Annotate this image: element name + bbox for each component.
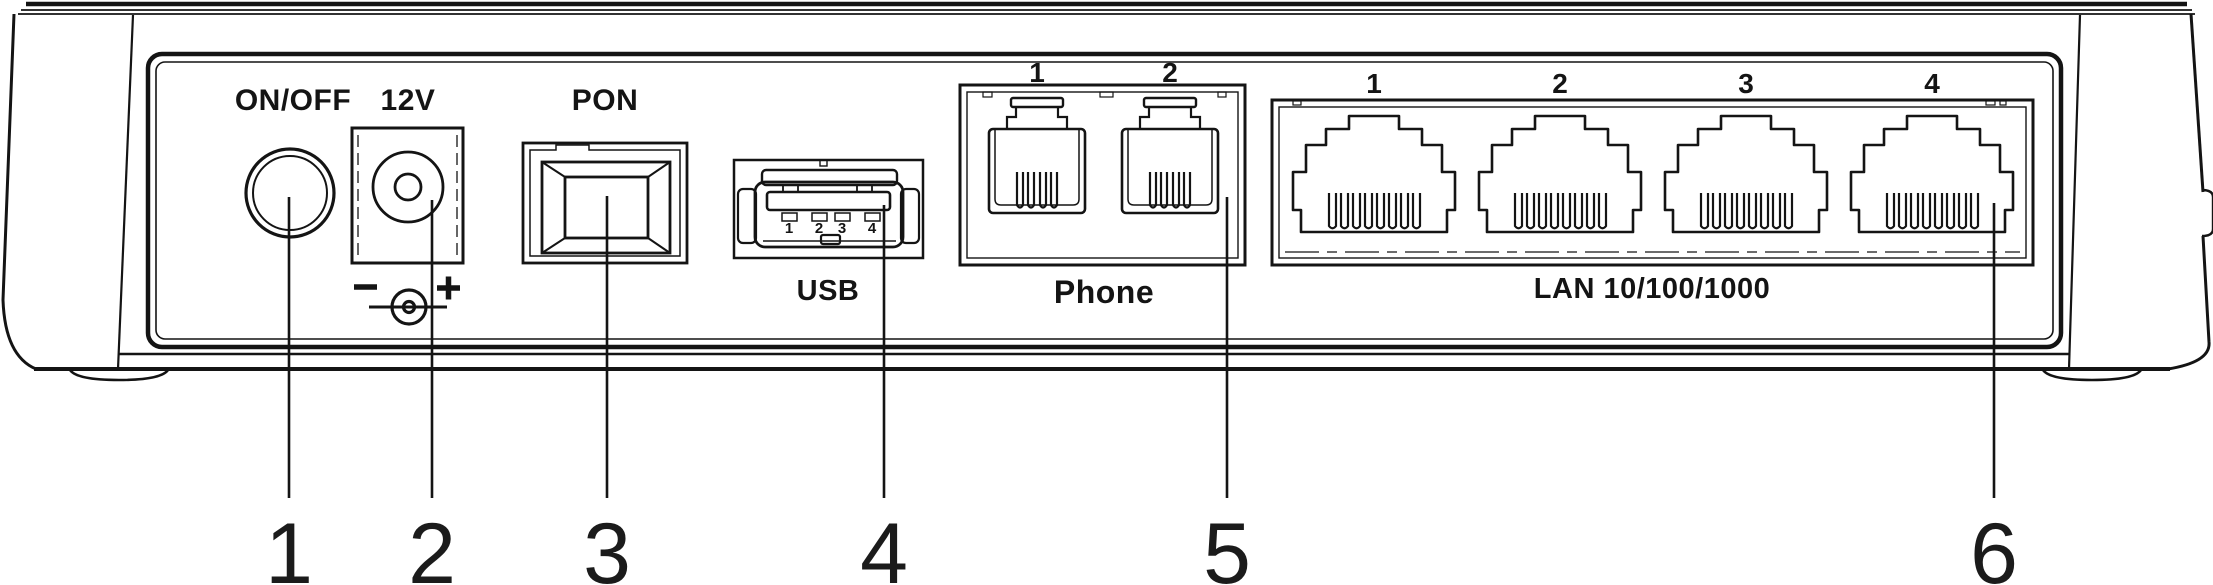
lan-port-3-number: 3 — [1738, 68, 1754, 99]
right-foot — [2043, 370, 2141, 380]
lan-port-4-number: 4 — [1924, 68, 1940, 99]
dc-jack-label: 12V — [381, 84, 436, 117]
rj45-jack-1 — [1293, 116, 1455, 232]
callout-numbers: 1 2 3 4 5 6 — [265, 506, 2018, 585]
phone-ports: 1 2 Phone — [960, 57, 1245, 310]
side-tab — [2202, 190, 2213, 236]
usb-port: 1 2 3 4 USB — [734, 160, 923, 307]
usb-pin-1: 1 — [785, 220, 793, 237]
left-foot — [70, 370, 168, 380]
lan-port-2-number: 2 — [1552, 68, 1568, 99]
usb-label: USB — [797, 275, 860, 307]
polarity-plus-icon — [437, 277, 460, 300]
callout-number-4: 4 — [860, 506, 908, 585]
rj11-jack-1 — [989, 98, 1085, 213]
rj45-jack-3 — [1665, 116, 1827, 232]
pon-port: PON — [523, 84, 687, 263]
dc-power-jack: 12V — [352, 84, 463, 324]
lan-block — [1272, 100, 2033, 265]
pon-label: PON — [572, 84, 639, 117]
lan-ports: 1 2 3 4 LAN 10/100/1000 — [1272, 68, 2033, 305]
phone-label: Phone — [1054, 274, 1154, 310]
phone-block — [960, 85, 1245, 265]
callout-number-1: 1 — [265, 506, 313, 585]
rear-panel-diagram: ON/OFF 12V PON — [0, 0, 2213, 585]
power-button: ON/OFF — [235, 84, 351, 237]
lan-label: LAN 10/100/1000 — [1534, 273, 1770, 305]
phone-port-1-number: 1 — [1029, 57, 1045, 88]
phone-port-2-number: 2 — [1162, 57, 1178, 88]
chassis-right-edge — [2191, 14, 2203, 192]
callout-number-6: 6 — [1970, 506, 2018, 585]
dc-jack-body — [352, 128, 463, 263]
usb-tongue — [767, 192, 890, 210]
rj45-jack-4 — [1851, 116, 2013, 232]
chassis-left-edge — [3, 14, 36, 369]
polarity-symbol — [354, 277, 460, 325]
callout-number-2: 2 — [408, 506, 456, 585]
lan-port-1-number: 1 — [1366, 68, 1382, 99]
callout-number-5: 5 — [1203, 506, 1251, 585]
rj11-jack-2 — [1122, 98, 1218, 213]
rj45-jack-2 — [1479, 116, 1641, 232]
callout-number-3: 3 — [583, 506, 631, 585]
dc-jack-pin — [395, 174, 421, 200]
usb-pin-4: 4 — [868, 220, 877, 237]
power-button-label: ON/OFF — [235, 84, 351, 117]
